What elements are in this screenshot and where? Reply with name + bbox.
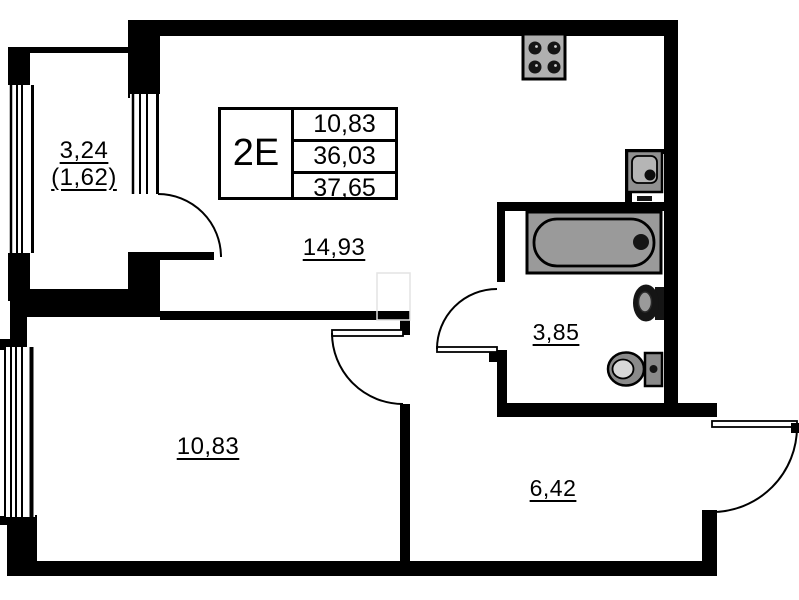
sink-icon: [633, 285, 664, 322]
balcony-reduced-area-label: (1,62): [51, 165, 117, 190]
total-area-value: 37,65: [294, 174, 395, 203]
bottom-wall: [10, 561, 717, 576]
living-area-value: 10,83: [294, 110, 395, 142]
bedroom-door-swing-arc: [332, 333, 403, 404]
balcony-door-leaf: [150, 252, 214, 260]
balcony-right-wall: [128, 20, 160, 98]
unit-type-cell: 2E: [221, 110, 294, 197]
balcony-right-window: [130, 94, 160, 194]
toilet-icon: [608, 353, 662, 387]
bedroom-area-label: 10,83: [177, 434, 240, 459]
balcony-topleft-block: [8, 47, 30, 85]
living-bedroom-wall: [160, 311, 410, 320]
top-wall: [128, 20, 678, 36]
balcony-left-window: [10, 85, 34, 253]
bedroom-right-wall: [400, 404, 410, 564]
title-block: 2E 10,83 36,03 37,65: [218, 107, 398, 200]
bathroom-door: [437, 289, 497, 352]
entry-door-leaf: [712, 421, 797, 427]
hallway-area-label: 6,42: [530, 476, 577, 500]
unit-type-label: 2E: [233, 132, 279, 175]
bathtub-icon: [527, 212, 661, 273]
bathroom-top-wall: [497, 202, 678, 211]
washing-machine-icon: [627, 151, 662, 201]
bedroom-door-leaf: [332, 330, 403, 336]
entry-door: [712, 421, 799, 512]
floor-plan-drawing: [0, 0, 799, 600]
living-kitchen-area-label: 14,93: [303, 235, 366, 260]
bathroom-door-swing-arc: [437, 289, 497, 349]
balcony-door-swing-arc: [158, 194, 221, 257]
balcony-door: [150, 194, 221, 260]
bathroom-left-wall-lower: [497, 350, 507, 410]
bedroom-window: [4, 347, 35, 517]
bedroom-door: [332, 330, 403, 404]
bathroom-left-wall-upper: [497, 202, 505, 282]
right-wall: [664, 20, 678, 410]
balcony-area-label: 3,24: [60, 138, 109, 163]
floor-plan: 2E 10,83 36,03 37,65 3,24 (1,62) 14,93 3…: [0, 0, 799, 600]
bathroom-area-label: 3,85: [533, 320, 580, 344]
area-without-balcony-value: 36,03: [294, 142, 395, 174]
bathroom-door-leaf: [437, 347, 497, 352]
balcony-bottom-wall: [18, 289, 160, 317]
stove-icon: [523, 34, 565, 79]
title-block-values: 10,83 36,03 37,65: [294, 110, 395, 197]
hallway-top-wall: [497, 403, 717, 417]
entry-door-swing-arc: [712, 427, 797, 512]
left-bottom-block: [7, 515, 37, 576]
left-bottom-tab: [0, 516, 7, 525]
